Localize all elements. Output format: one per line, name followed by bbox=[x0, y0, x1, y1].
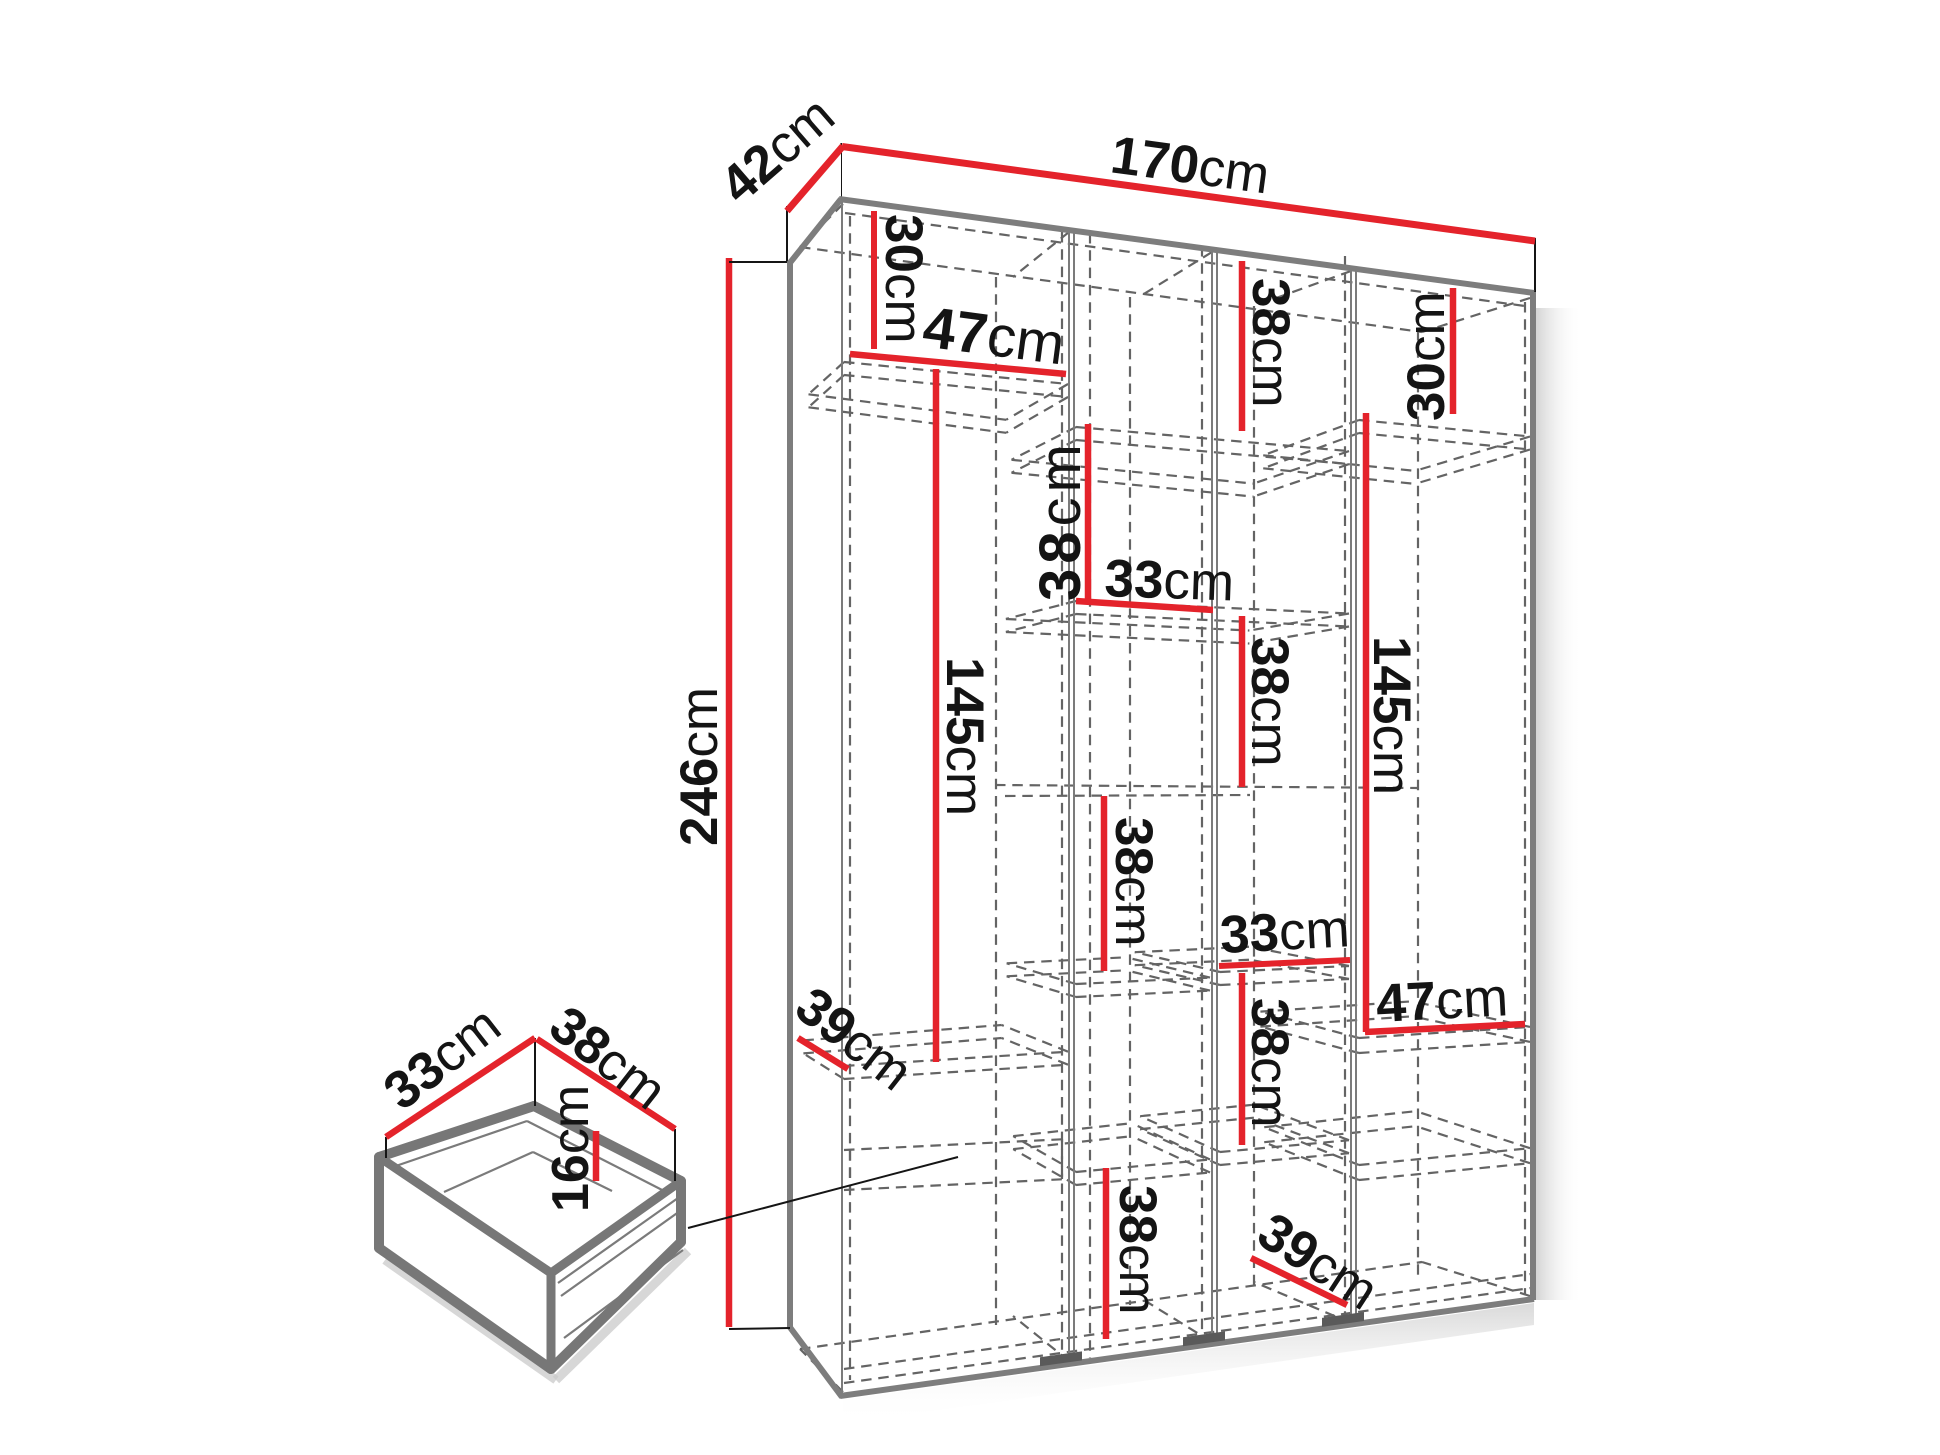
svg-text:47cm: 47cm bbox=[1374, 967, 1509, 1034]
svg-text:38cm: 38cm bbox=[1241, 278, 1300, 408]
svg-text:16cm: 16cm bbox=[542, 1085, 600, 1212]
svg-text:38cm: 38cm bbox=[1240, 637, 1299, 767]
svg-text:145cm: 145cm bbox=[1362, 636, 1421, 795]
svg-text:38cm: 38cm bbox=[1108, 1185, 1167, 1315]
svg-text:33cm: 33cm bbox=[1219, 899, 1352, 965]
svg-text:38cm: 38cm bbox=[1104, 817, 1163, 947]
svg-text:38cm: 38cm bbox=[1240, 998, 1299, 1128]
svg-text:30cm: 30cm bbox=[1397, 291, 1456, 421]
svg-text:145cm: 145cm bbox=[935, 657, 994, 816]
svg-text:246cm: 246cm bbox=[670, 687, 729, 846]
svg-text:38cm: 38cm bbox=[1028, 439, 1093, 601]
svg-text:33cm: 33cm bbox=[1104, 549, 1236, 612]
